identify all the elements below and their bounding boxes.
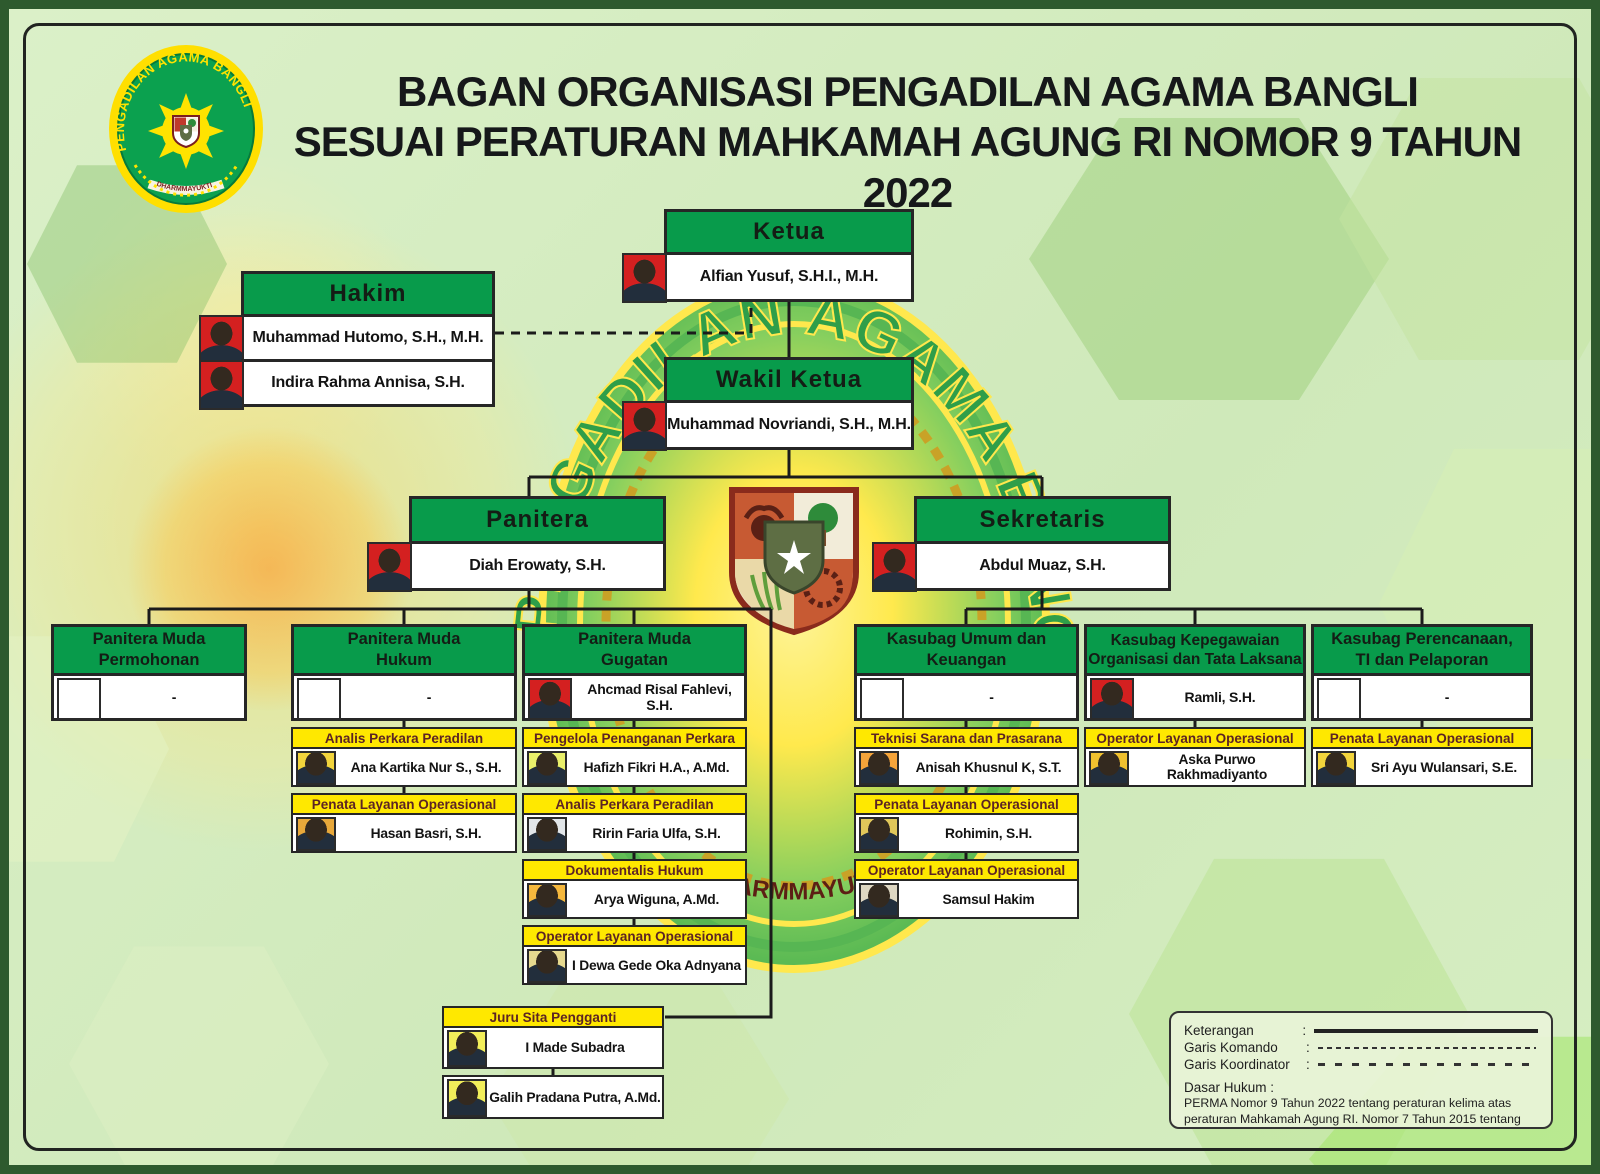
sub-position-title: Teknisi Sarana dan Prasarana <box>854 727 1079 749</box>
unit-title-line2: TI dan Pelaporan <box>1356 650 1489 671</box>
jurusita-title: Juru Sita Pengganti <box>442 1006 664 1028</box>
person-name: - <box>172 689 176 705</box>
unit-title-line1: Kasubag Perencanaan, <box>1331 629 1513 650</box>
box-hakim-member-row: Indira Rahma Annisa, S.H. <box>241 359 495 407</box>
solid-line-sample <box>1314 1029 1538 1033</box>
court-logo: PENGADILAN AGAMA BANGLI <box>107 43 265 215</box>
unit-header-panitera-muda-permohonan: Panitera Muda Permohonan <box>51 624 247 676</box>
photo-placeholder <box>860 678 904 720</box>
sub-position-row: Ririn Faria Ulfa, S.H. <box>522 813 747 853</box>
person-name: Muhammad Novriandi, S.H., M.H. <box>667 416 911 434</box>
command-line-sample <box>1318 1047 1536 1049</box>
person-name: Indira Rahma Annisa, S.H. <box>271 374 465 392</box>
unit-header-panitera-muda-gugatan: Panitera Muda Gugatan <box>522 624 747 676</box>
unit-title-line1: Panitera Muda <box>578 629 691 650</box>
dasar-hukum-label: Dasar Hukum : <box>1184 1080 1538 1096</box>
coordinator-dashed-line <box>495 304 751 333</box>
sub-position-title: Analis Perkara Peradilan <box>291 727 517 749</box>
legend-row-komando: Garis Komando : <box>1184 1039 1538 1056</box>
person-name: Hasan Basri, S.H. <box>371 826 482 841</box>
person-name: Rohimin, S.H. <box>945 826 1032 841</box>
portrait-photo <box>199 315 244 365</box>
page-background: PENGADILAN AGAMA BANGLI DHARMMAYUKTI <box>9 9 1591 1165</box>
page-title-line1: BAGAN ORGANISASI PENGADILAN AGAMA BANGLI <box>279 67 1536 117</box>
legend-row-koordinator: Garis Koordinator : <box>1184 1056 1538 1073</box>
dasar-hukum-text: PERMA Nomor 9 Tahun 2022 tentang peratur… <box>1184 1096 1538 1129</box>
unit-title-line2: Hukum <box>376 650 432 671</box>
legend-colon: : <box>1302 1023 1314 1038</box>
portrait-photo <box>1316 751 1356 785</box>
sub-position-row: Aska Purwo Rakhmadiyanto <box>1084 747 1306 787</box>
portrait-photo <box>859 883 899 917</box>
legend-row-keterangan: Keterangan : <box>1184 1022 1538 1039</box>
unit-chief-row: - <box>1311 673 1533 721</box>
unit-header-panitera-muda-hukum: Panitera Muda Hukum <box>291 624 517 676</box>
unit-header-kasubag-perencanaan: Kasubag Perencanaan, TI dan Pelaporan <box>1311 624 1533 676</box>
sub-position-title: Dokumentalis Hukum <box>522 859 747 881</box>
box-hakim-member-row: Muhammad Hutomo, S.H., M.H. <box>241 314 495 362</box>
sub-position-row: Hafizh Fikri H.A., A.Md. <box>522 747 747 787</box>
person-name: I Made Subadra <box>525 1040 624 1055</box>
portrait-photo <box>872 542 917 592</box>
portrait-photo <box>527 883 567 917</box>
unit-title-line2: Permohonan <box>99 650 200 671</box>
person-name: - <box>989 689 993 705</box>
sub-position-row: I Dewa Gede Oka Adnyana <box>522 945 747 985</box>
person-name: Sri Ayu Wulansari, S.E. <box>1371 760 1517 775</box>
sub-position-title: Penata Layanan Operasional <box>1311 727 1533 749</box>
person-name: Ana Kartika Nur S., S.H. <box>351 760 502 775</box>
jurusita-member-row: I Made Subadra <box>442 1026 664 1069</box>
box-panitera-name-row: Diah Erowaty, S.H. <box>409 541 666 591</box>
unit-title-line1: Kasubag Umum dan <box>887 629 1047 650</box>
unit-title-line2: Keuangan <box>927 650 1007 671</box>
unit-chief-row: - <box>291 673 517 721</box>
person-name: Ahcmad Risal Fahlevi, S.H. <box>575 681 744 713</box>
page-title: BAGAN ORGANISASI PENGADILAN AGAMA BANGLI… <box>279 67 1536 218</box>
portrait-photo <box>447 1030 487 1067</box>
portrait-photo <box>199 360 244 410</box>
person-name: Aska Purwo Rakhmadiyanto <box>1130 752 1304 782</box>
box-hakim-header: Hakim <box>241 271 495 317</box>
sub-position-title: Operator Layanan Operasional <box>1084 727 1306 749</box>
unit-title-line2: Organisasi dan Tata Laksana <box>1088 650 1301 669</box>
coordinator-line-sample <box>1318 1063 1532 1066</box>
photo-placeholder <box>297 678 341 720</box>
unit-chief-row: - <box>854 673 1079 721</box>
portrait-photo <box>622 401 667 451</box>
sub-position-row: Rohimin, S.H. <box>854 813 1079 853</box>
unit-title-line2: Gugatan <box>601 650 668 671</box>
person-name: Arya Wiguna, A.Md. <box>594 892 719 907</box>
sub-position-row: Hasan Basri, S.H. <box>291 813 517 853</box>
legend-colon: : <box>1306 1057 1318 1072</box>
box-sekretaris-name-row: Abdul Muaz, S.H. <box>914 541 1171 591</box>
legend-label: Garis Koordinator <box>1184 1057 1306 1072</box>
portrait-photo <box>528 678 572 720</box>
sub-position-row: Arya Wiguna, A.Md. <box>522 879 747 919</box>
portrait-photo <box>527 751 567 785</box>
logo-sunburst <box>148 93 224 169</box>
sub-position-title: Operator Layanan Operasional <box>522 925 747 947</box>
person-name: Galih Pradana Putra, A.Md. <box>489 1090 660 1105</box>
unit-title-line1: Kasubag Kepegawaian <box>1111 631 1280 650</box>
sub-position-title: Pengelola Penanganan Perkara <box>522 727 747 749</box>
box-panitera-header: Panitera <box>409 496 666 544</box>
portrait-photo <box>296 751 336 785</box>
person-name: Samsul Hakim <box>943 892 1035 907</box>
box-wakil-ketua-header: Wakil Ketua <box>664 357 914 403</box>
jurusita-member-row: Galih Pradana Putra, A.Md. <box>442 1075 664 1119</box>
person-name: Hafizh Fikri H.A., A.Md. <box>584 760 730 775</box>
sub-position-row: Anisah Khusnul K, S.T. <box>854 747 1079 787</box>
legend-box: Keterangan : Garis Komando : Garis Koord… <box>1169 1011 1553 1129</box>
sub-position-row: Samsul Hakim <box>854 879 1079 919</box>
unit-header-kasubag-kepegawaian: Kasubag Kepegawaian Organisasi dan Tata … <box>1084 624 1306 676</box>
legend-label: Garis Komando <box>1184 1040 1306 1055</box>
box-sekretaris-header: Sekretaris <box>914 496 1171 544</box>
person-name: Anisah Khusnul K, S.T. <box>916 760 1062 775</box>
org-chart-poster: { "page": { "title_line1": "BAGAN ORGANI… <box>0 0 1600 1174</box>
unit-header-kasubag-umum-keuangan: Kasubag Umum dan Keuangan <box>854 624 1079 676</box>
photo-placeholder <box>57 678 101 720</box>
portrait-photo <box>859 751 899 785</box>
unit-title-line1: Panitera Muda <box>348 629 461 650</box>
portrait-photo <box>447 1079 487 1117</box>
legend-colon: : <box>1306 1040 1318 1055</box>
portrait-photo <box>367 542 412 592</box>
person-name: I Dewa Gede Oka Adnyana <box>572 958 741 973</box>
legend-label: Keterangan <box>1184 1023 1302 1038</box>
box-ketua-header: Ketua <box>664 209 914 255</box>
person-name: Alfian Yusuf, S.H.I., M.H. <box>700 268 879 286</box>
sub-position-row: Ana Kartika Nur S., S.H. <box>291 747 517 787</box>
sub-position-title: Analis Perkara Peradilan <box>522 793 747 815</box>
sub-position-title: Penata Layanan Operasional <box>291 793 517 815</box>
photo-placeholder <box>1317 678 1361 720</box>
unit-title-line1: Panitera Muda <box>93 629 206 650</box>
person-name: Muhammad Hutomo, S.H., M.H. <box>252 329 483 347</box>
sub-position-title: Penata Layanan Operasional <box>854 793 1079 815</box>
portrait-photo <box>1090 678 1134 720</box>
portrait-photo <box>859 817 899 851</box>
box-ketua-name-row: Alfian Yusuf, S.H.I., M.H. <box>664 252 914 302</box>
person-name: Abdul Muaz, S.H. <box>979 557 1106 575</box>
page-title-line2: SESUAI PERATURAN MAHKAMAH AGUNG RI NOMOR… <box>279 117 1536 218</box>
person-name: Ramli, S.H. <box>1185 689 1256 705</box>
sub-position-row: Sri Ayu Wulansari, S.E. <box>1311 747 1533 787</box>
box-wakil-ketua-name-row: Muhammad Novriandi, S.H., M.H. <box>664 400 914 450</box>
person-name: - <box>1445 689 1449 705</box>
person-name: Ririn Faria Ulfa, S.H. <box>592 826 720 841</box>
portrait-photo <box>527 949 567 983</box>
person-name: - <box>427 689 431 705</box>
portrait-photo <box>622 253 667 303</box>
portrait-photo <box>527 817 567 851</box>
unit-chief-row: Ahcmad Risal Fahlevi, S.H. <box>522 673 747 721</box>
portrait-photo <box>296 817 336 851</box>
unit-chief-row: Ramli, S.H. <box>1084 673 1306 721</box>
unit-chief-row: - <box>51 673 247 721</box>
portrait-photo <box>1089 751 1129 785</box>
sub-position-title: Operator Layanan Operasional <box>854 859 1079 881</box>
person-name: Diah Erowaty, S.H. <box>469 557 606 575</box>
